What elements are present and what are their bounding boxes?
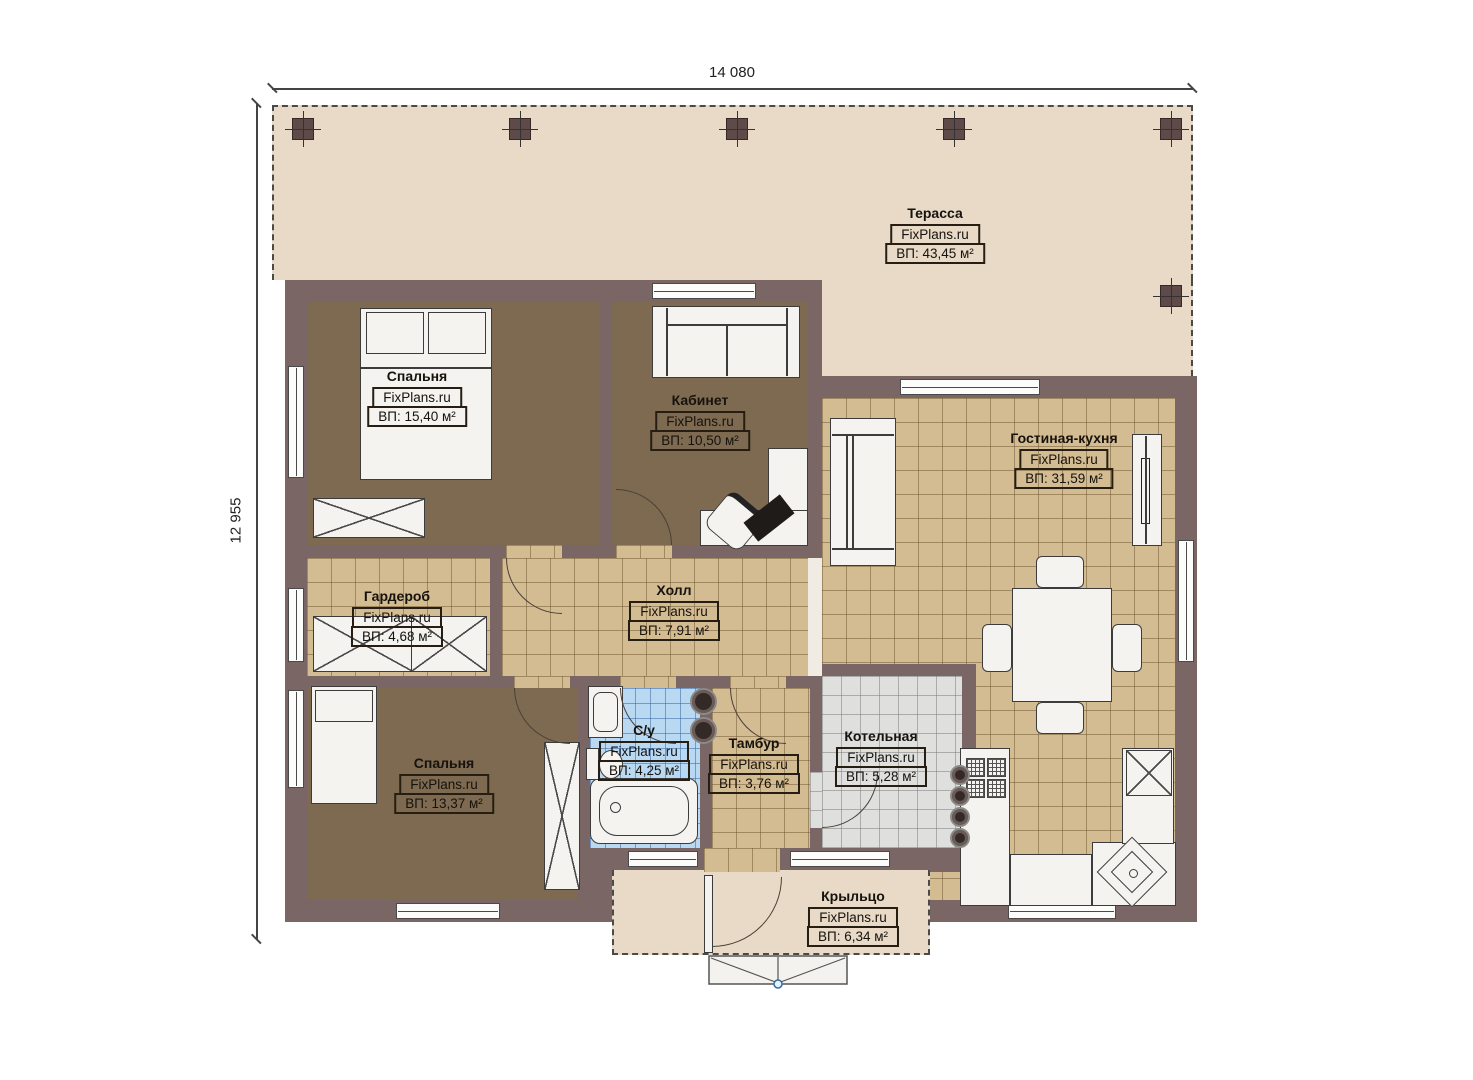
room-label-bedroom2: Спальня FixPlans.ru ВП: 13,37 м² xyxy=(394,755,494,814)
door-opening xyxy=(810,772,822,828)
room-label-bedroom1: Спальня FixPlans.ru ВП: 15,40 м² xyxy=(367,368,467,427)
window xyxy=(396,903,500,919)
dining-chair xyxy=(1036,702,1084,734)
room-name: Крыльцо xyxy=(807,888,899,904)
room-name: Спальня xyxy=(367,368,467,384)
room-label-terrace: Терасса FixPlans.ru ВП: 43,45 м² xyxy=(885,205,985,264)
area-box: ВП: 6,34 м² xyxy=(807,926,899,947)
pillar-axis-line xyxy=(303,111,304,147)
brand-box: FixPlans.ru xyxy=(709,754,799,775)
brand-box: FixPlans.ru xyxy=(599,741,689,762)
entrance-steps xyxy=(708,955,848,989)
burner-knob xyxy=(950,786,970,806)
pillow xyxy=(366,312,424,354)
sofa-back-line xyxy=(846,436,848,548)
room-label-wardrobe: Гардероб FixPlans.ru ВП: 4,68 м² xyxy=(351,588,443,647)
room-name: Кабинет xyxy=(650,392,750,408)
brand-box: FixPlans.ru xyxy=(836,747,926,768)
living-sofa xyxy=(830,418,896,566)
brand-box: FixPlans.ru xyxy=(629,601,719,622)
hall-living-opening xyxy=(808,558,822,676)
brand-box: FixPlans.ru xyxy=(1019,449,1109,470)
area-box: ВП: 7,91 м² xyxy=(628,620,720,641)
area-box: ВП: 4,25 м² xyxy=(598,760,690,781)
room-name: Гостиная-кухня xyxy=(1010,430,1117,446)
window xyxy=(288,366,304,478)
entrance-door-leaf xyxy=(704,875,713,953)
room-label-office: Кабинет FixPlans.ru ВП: 10,50 м² xyxy=(650,392,750,451)
terrace-pillar xyxy=(726,118,748,140)
dimension-line-top xyxy=(272,88,1193,90)
dining-chair xyxy=(982,624,1012,672)
brand-box: FixPlans.ru xyxy=(352,607,442,628)
pillar-axis-line xyxy=(737,111,738,147)
room-label-bathroom: С/у FixPlans.ru ВП: 4,25 м² xyxy=(598,722,690,781)
sofa-armrest-line xyxy=(832,548,894,550)
room-name: Холл xyxy=(628,582,720,598)
pillow xyxy=(315,690,373,722)
dining-chair xyxy=(1112,624,1142,672)
dining-chair xyxy=(1036,556,1084,588)
terrace-pillar xyxy=(943,118,965,140)
dimension-label-width: 14 080 xyxy=(709,64,755,81)
dimension-line-left xyxy=(256,103,258,940)
room-name: Терасса xyxy=(885,205,985,221)
pillar-axis-line xyxy=(1171,278,1172,314)
bathtub-drain xyxy=(610,802,621,813)
pillar-axis-line xyxy=(1171,111,1172,147)
sofa-cushion-divider xyxy=(726,324,728,376)
pillow xyxy=(428,312,486,354)
window xyxy=(288,690,304,788)
window xyxy=(1178,540,1194,662)
brand-box: FixPlans.ru xyxy=(372,387,462,408)
stove-grate xyxy=(987,779,1006,798)
wardrobe-cabinet xyxy=(313,498,425,538)
terrace-area-extension xyxy=(822,280,1193,376)
area-box: ВП: 43,45 м² xyxy=(885,243,985,264)
burner-knob xyxy=(950,807,970,827)
tv-axis-line xyxy=(1145,436,1147,544)
sofa-armrest-line xyxy=(832,434,894,436)
terrace-pillar xyxy=(1160,118,1182,140)
sofa-back-line xyxy=(852,436,854,548)
room-name: Спальня xyxy=(394,755,494,771)
kitchen-appliance xyxy=(1126,750,1172,796)
door-opening xyxy=(506,545,562,558)
window xyxy=(288,588,304,662)
stove-grate xyxy=(987,758,1006,777)
area-box: ВП: 10,50 м² xyxy=(650,430,750,451)
door-opening xyxy=(704,848,780,872)
terrace-pillar xyxy=(509,118,531,140)
pillar-axis-line xyxy=(954,111,955,147)
room-name: Тамбур xyxy=(708,735,800,751)
window xyxy=(900,379,1040,395)
room-label-boiler: Котельная FixPlans.ru ВП: 5,28 м² xyxy=(835,728,927,787)
wardrobe-cabinet xyxy=(544,742,580,890)
burner-knob xyxy=(950,828,970,848)
kitchen-counter xyxy=(1010,854,1092,906)
area-box: ВП: 3,76 м² xyxy=(708,773,800,794)
dimension-label-height: 12 955 xyxy=(228,481,245,561)
door-opening xyxy=(616,545,672,558)
area-box: ВП: 5,28 м² xyxy=(835,766,927,787)
area-box: ВП: 4,68 м² xyxy=(351,626,443,647)
terrace-pillar xyxy=(1160,285,1182,307)
dining-table xyxy=(1012,588,1112,702)
sofa-armrest-line xyxy=(786,308,788,376)
area-box: ВП: 31,59 м² xyxy=(1014,468,1114,489)
window xyxy=(790,851,890,867)
room-label-porch: Крыльцо FixPlans.ru ВП: 6,34 м² xyxy=(807,888,899,947)
room-name: С/у xyxy=(598,722,690,738)
sink-drain xyxy=(1129,869,1138,878)
area-box: ВП: 13,37 м² xyxy=(394,793,494,814)
room-label-living-kitchen: Гостиная-кухня FixPlans.ru ВП: 31,59 м² xyxy=(1010,430,1117,489)
pillar-axis-line xyxy=(520,111,521,147)
window xyxy=(652,283,756,299)
window xyxy=(628,851,698,867)
floor-plan: Терасса FixPlans.ru ВП: 43,45 м² Спальня… xyxy=(0,0,1473,1080)
door-opening xyxy=(730,676,786,688)
door-opening xyxy=(620,676,676,688)
door-opening xyxy=(514,676,570,688)
room-label-hall: Холл FixPlans.ru ВП: 7,91 м² xyxy=(628,582,720,641)
washer-dryer-stack xyxy=(690,688,717,715)
room-name: Гардероб xyxy=(351,588,443,604)
brand-box: FixPlans.ru xyxy=(890,224,980,245)
sofa-armrest-line xyxy=(666,308,668,376)
terrace-pillar xyxy=(292,118,314,140)
area-box: ВП: 15,40 м² xyxy=(367,406,467,427)
room-label-vestibule: Тамбур FixPlans.ru ВП: 3,76 м² xyxy=(708,735,800,794)
brand-box: FixPlans.ru xyxy=(655,411,745,432)
brand-box: FixPlans.ru xyxy=(808,907,898,928)
brand-box: FixPlans.ru xyxy=(399,774,489,795)
burner-knob xyxy=(950,765,970,785)
room-name: Котельная xyxy=(835,728,927,744)
